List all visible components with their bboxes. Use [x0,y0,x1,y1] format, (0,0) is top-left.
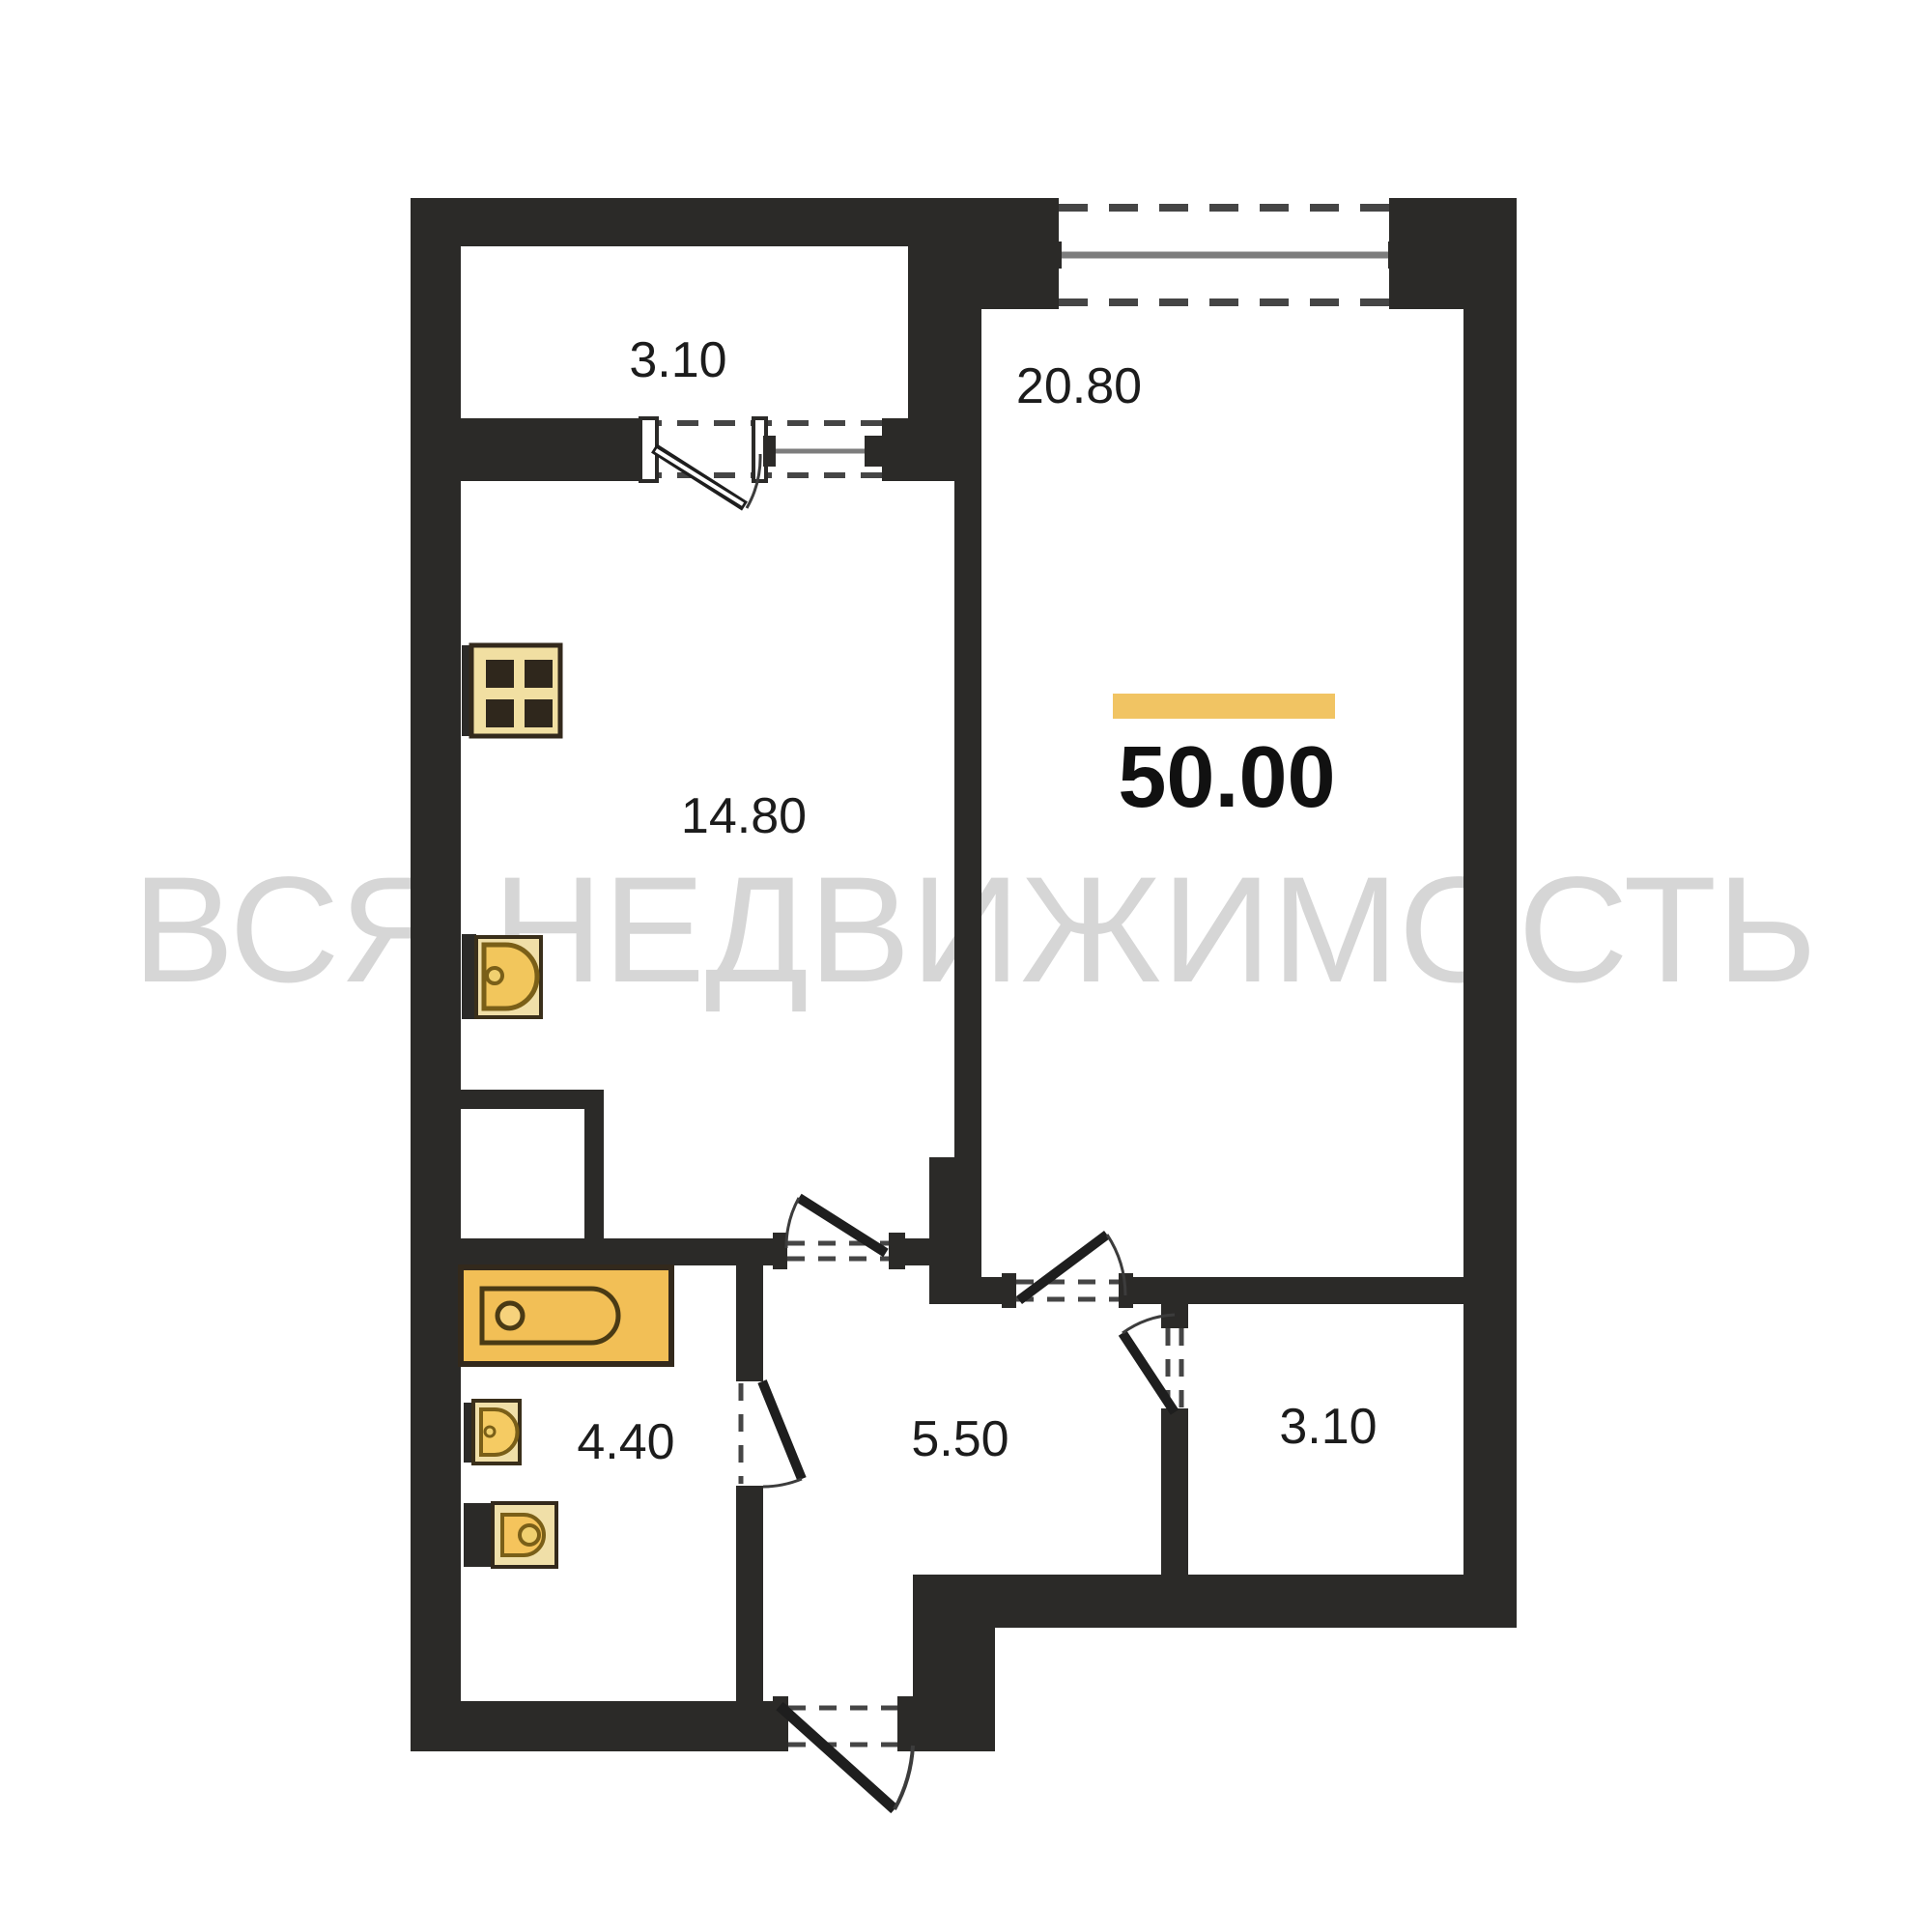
stove-burner [525,660,553,688]
wall-shaft-right [584,1090,604,1265]
wall-living-band-right [1119,1277,1463,1304]
kitchen-door [786,1198,889,1259]
wall-balcony-band-right [882,418,908,481]
entrance-door [780,1706,913,1809]
entrance-door-leaf [780,1706,895,1809]
wall-bottom-right [995,1575,1517,1628]
balcony-window-post-right [865,436,882,467]
window-post-left [1046,241,1062,269]
living-room-area-label: 20.80 [1016,358,1142,414]
wall-right [1463,198,1517,1628]
kitchen-door-leaf [799,1198,886,1253]
wall-kitchen-living-partition [954,481,981,1157]
wall-balcony-partition [908,246,981,481]
living-door-leaf [1019,1235,1107,1300]
toilet-drain [520,1525,539,1545]
window-post-right [1388,241,1404,269]
living-room-window [1046,208,1404,302]
wall-kitchen-living-partition-foot [929,1157,981,1304]
wall-left [411,198,461,1751]
accent-bar [1113,694,1335,719]
hallway-area-label: 5.50 [911,1411,1009,1467]
stove-burner [525,699,553,727]
storage-area-label: 3.10 [1279,1399,1377,1455]
living-door [1016,1235,1125,1300]
wall-shaft-top [461,1090,604,1109]
entrance-door-arc [895,1746,913,1809]
bathroom-area-label: 4.40 [577,1414,674,1470]
wall-balcony-band-left [461,418,640,481]
bathtub-icon [461,1267,671,1364]
floorplan-page: ВСЯ НЕДВИЖИМОСТЬ [0,0,1932,1932]
storage-door [1122,1315,1181,1412]
bathroom-door-leaf [762,1381,802,1479]
kitchen-area-label: 14.80 [681,788,807,844]
wall-bathroom-right-upper [736,1265,763,1381]
balcony-window-post-left [763,436,776,467]
bathroom-door-arc [763,1479,802,1487]
bathroom-door [741,1381,802,1487]
wall-bottom-left [411,1701,773,1751]
kitchen-door-arc [786,1198,799,1248]
floor-plan: ВСЯ НЕДВИЖИМОСТЬ [0,0,1932,1932]
washbasin-icon [464,1401,520,1463]
stove-burner [486,699,514,727]
balcony-door-window [640,418,882,508]
balcony-area-label: 3.10 [629,332,726,388]
stove-burner [486,660,514,688]
entrance-door-post-right [897,1696,913,1751]
bathtub-drain [497,1303,523,1328]
wall-bathroom-right-lower [736,1486,763,1701]
bathtub-body [461,1267,671,1364]
sink-icon [462,934,541,1019]
sink-back-strip [462,934,476,1019]
wall-entry-block [913,1575,995,1751]
stove-icon [462,645,560,736]
kitchen-door-post-right [889,1233,905,1269]
total-area-callout: 50.00 [1113,694,1336,826]
total-area-label: 50.00 [1118,729,1335,826]
sink-drain [487,968,502,983]
toilet-icon [464,1503,556,1567]
wall-storage-left [1161,1408,1188,1575]
toilet-tank [464,1503,493,1567]
kitchen-door-post-left [773,1233,787,1269]
washbasin-drain [485,1427,495,1436]
living-door-post-left [1002,1273,1016,1308]
